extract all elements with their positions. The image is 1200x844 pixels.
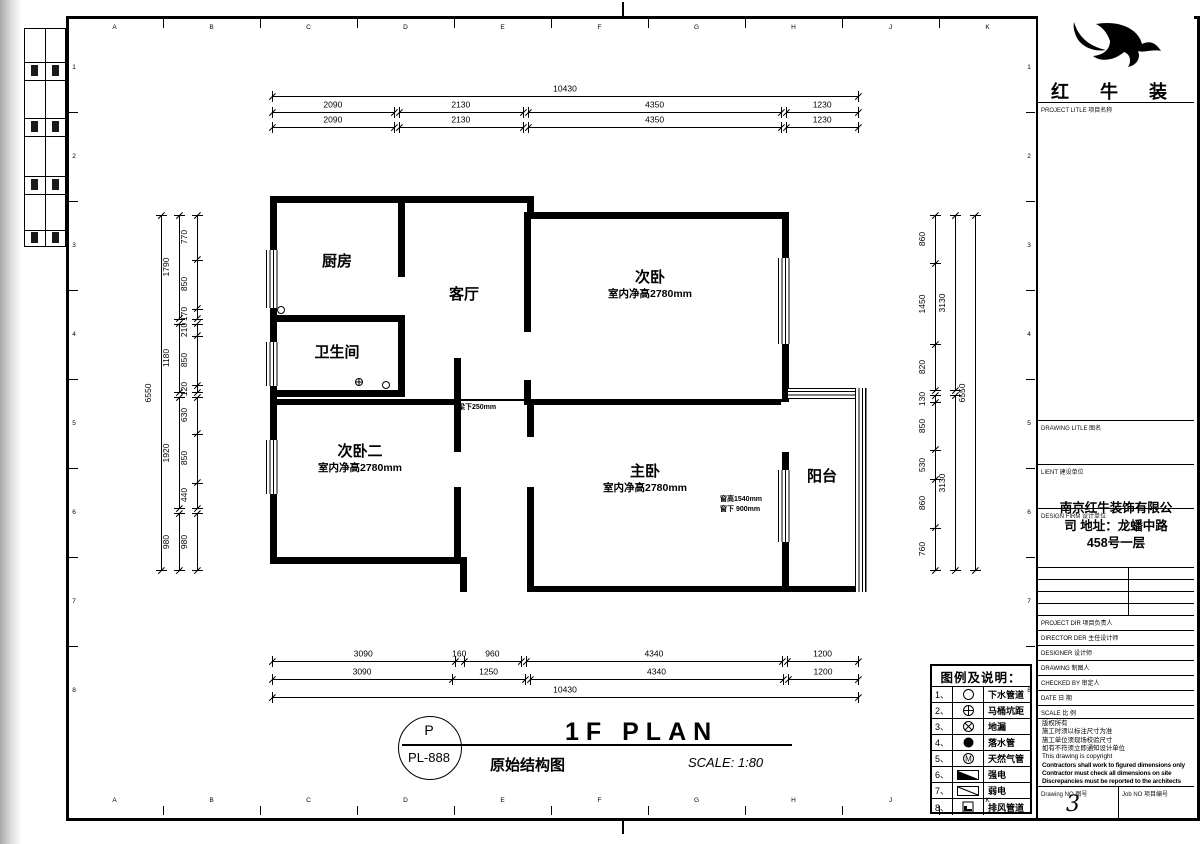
copyright-notes: 版权所有 施工时须以标注尺寸为准 施工单位须现场校验尺寸 如有不符须立即通知设计… [1042,720,1190,787]
dimension-value: 960 [485,650,499,659]
room-label-master: 主卧 [630,460,660,481]
dimension-chain: 10430 [272,83,858,99]
dimension-value: 770 [180,230,189,244]
circle-filled-icon [953,735,984,750]
dimension-value: 860 [918,232,927,246]
circle-icon [953,687,984,702]
legend-item-label: 地漏 [984,720,1030,733]
dimension-value: 3130 [938,293,947,312]
wall [277,315,404,322]
dimension-chain: 8601450820130850530860760 [920,215,936,570]
room-note-bedroom3: 室内净高2780mm [318,460,402,475]
wall [398,315,405,397]
dimension-value: 1180 [162,349,171,367]
dimension-value: 850 [180,353,189,367]
grid-letter-top: C [306,25,311,32]
plan-scale: SCALE: 1:80 [688,755,763,770]
dimension-value: 3130 [938,473,947,492]
dimension-chain: 6550 [960,215,976,570]
dimension-value: 10430 [553,686,577,695]
grid-letter-top: J [889,25,892,32]
dimension-chain: 309016096043401200 [272,648,858,664]
dimension-value: 2090 [323,116,342,125]
room-label-balcony: 阳台 [807,465,837,486]
window-symbol [266,440,278,494]
dimension-value: 4340 [644,650,663,659]
legend-item-number: 3、 [932,719,953,734]
room-note-bedroom2: 室内净高2780mm [608,286,692,301]
balcony-railing-top [788,388,858,399]
circle-plus-icon [953,703,984,718]
grid-number-right: 8 [1027,688,1031,695]
grid-number-left: 5 [72,421,76,428]
drawing-title-label: DRAWING LITLE 图名 [1041,423,1101,432]
grid-number-left: 7 [72,599,76,606]
stamp-letter: P [398,722,460,738]
legend-row: 8、排风管道 [932,799,1030,815]
dimension-value: 2130 [451,101,470,110]
dimension-chain: 2090213043501230 [272,114,858,130]
dimension-value: 1230 [813,101,832,110]
dimension-value: 4350 [645,101,664,110]
grid-letter-top: G [694,25,699,32]
dimension-value: 630 [180,408,189,422]
grid-number-right: 7 [1027,599,1031,606]
scan-edge-shade [0,0,22,844]
grid-number-right: 1 [1027,65,1031,72]
dimension-chain: 179011801920980 [164,215,180,570]
legend-row: 5、M天然气管 [932,751,1030,767]
legend-item-number: 8、 [932,799,953,815]
titleblock-row-label: PROJECT DIR 项目负责人 [1041,618,1113,627]
dimension-value: 2130 [451,116,470,125]
window-symbol [266,250,278,308]
titleblock-row-label: DESIGNER 设计师 [1041,648,1092,657]
room-label-kitchen: 厨房 [322,250,352,271]
room-label-bedroom3: 次卧二 [337,440,382,461]
dimension-value: 980 [162,535,171,549]
grid-letter-bottom: F [598,798,602,805]
grid-letter-top: D [403,25,408,32]
svg-text:M: M [965,755,972,764]
project-title-label: PROJECT LITLE 项目名称 [1041,105,1112,114]
grid-number-left: 3 [72,243,76,250]
job-no-label: Job NO 项目编号 [1122,789,1168,798]
dimension-value: 3090 [353,668,372,677]
title-block: 红 牛 装 饰 PROJECT LITLE 项目名称 DRAWING LITLE… [1038,16,1194,818]
legend-row: 4、落水管 [932,735,1030,751]
room-label-living: 客厅 [449,283,479,304]
wall [398,203,405,277]
grid-letter-top: K [985,25,989,32]
dimension-value: 1230 [813,116,832,125]
dimension-value: 1790 [162,257,171,276]
legend-item-label: 落水管 [984,736,1030,749]
room-label-bedroom2: 次卧 [635,266,665,287]
drain-pipe-icon [276,302,286,320]
titleblock-row-label: DATE 日 期 [1041,693,1072,702]
titleblock-row-label: CHECKED BY 审定人 [1041,678,1100,687]
wall [270,196,533,203]
grid-letter-bottom: B [209,798,213,805]
dimension-value: 6550 [144,383,153,402]
client-label: LIENT 建设单位 [1041,467,1084,476]
beam-line [404,399,526,401]
wall [527,405,534,437]
grid-number-right: 5 [1027,421,1031,428]
dimension-chain: 10430 [272,684,858,700]
rect-diag-icon [953,783,984,798]
grid-number-right: 6 [1027,510,1031,517]
fold-strip-table [24,28,66,247]
wall [527,586,857,592]
dimension-value: 130 [918,392,927,406]
drawing-no-value: 3 [1066,792,1080,817]
dimension-value: 2090 [323,101,342,110]
grid-letter-top: E [500,25,504,32]
dimension-value: 1920 [162,443,171,462]
dimension-value: 4340 [647,668,666,677]
titleblock-row-label: SCALE 比 例 [1041,708,1076,717]
dimension-value: 860 [918,496,927,510]
wall [527,487,534,592]
balcony-railing-right [855,388,868,592]
legend-item-label: 下水管道 [984,688,1030,701]
dimension-chain: 3090125043401200 [272,666,858,682]
legend-row: 7、弱电 [932,783,1030,799]
legend-item-number: 7、 [932,783,953,798]
legend-item-label: 排风管道 [984,801,1030,814]
dimension-value: 850 [180,277,189,291]
titleblock-row-label: DRAWING 制图人 [1041,663,1089,672]
dimension-value: 980 [180,535,189,549]
window-sill-note: 窗下 900mm [720,505,760,514]
dimension-value: 170 [180,307,189,321]
grid-letter-bottom: C [306,798,311,805]
grid-number-left: 2 [72,154,76,161]
grid-number-right: 4 [1027,332,1031,339]
dimension-value: 1200 [813,650,832,659]
circle-m-icon: M [953,751,984,766]
dimension-value: 210 [180,323,189,337]
wall [454,358,461,452]
balcony-door-opening [781,402,790,452]
grid-letter-top: H [791,25,796,32]
legend-row: 1、下水管道 [932,687,1030,703]
window-symbol [266,342,278,386]
legend-item-number: 5、 [932,751,953,766]
legend-item-number: 1、 [932,687,953,702]
fold-mark-top [622,2,624,16]
drawing-no-label: Drawing NO 图号 [1041,789,1087,798]
grid-number-right: 3 [1027,243,1031,250]
legend-row: 3、地漏 [932,719,1030,735]
grid-letter-bottom: H [791,798,796,805]
dimension-value: 120 [180,381,189,395]
legend-item-number: 2、 [932,703,953,718]
drain-pipe-icon [381,377,391,395]
dimension-chain: 31303130 [940,215,956,570]
grid-number-right: 2 [1027,154,1031,161]
dimension-value: 1450 [918,294,927,313]
room-note-master: 室内净高2780mm [603,480,687,495]
plan-title: 1F PLAN [565,718,718,747]
wall [454,487,461,557]
dimension-value: 1200 [814,668,833,677]
grid-letter-bottom: J [889,798,892,805]
grid-number-left: 1 [72,65,76,72]
wall [527,212,788,219]
dimension-value: 760 [918,542,927,556]
wall [524,212,531,332]
design-firm-text: 南京红牛装饰有限公司 地址：龙蟠中路 458号一层 [1056,500,1176,553]
dimension-value: 160 [452,650,466,659]
legend-row: 6、强电 [932,767,1030,783]
stamp-code: PL-888 [398,750,460,765]
drawing-sheet: 厨房 客厅 卫生间 次卧 室内净高2780mm 次卧二 室内净高2780mm 主… [0,0,1200,844]
circle-x-icon [953,719,984,734]
legend-title: 图例及说明： [932,666,1030,687]
brand-name: 红 牛 装 饰 [1038,78,1194,104]
dimension-chain: 2090213043501230 [272,99,858,115]
legend-item-number: 6、 [932,767,953,782]
wall [460,557,467,592]
legend-item-number: 4、 [932,735,953,750]
grid-letter-top: F [598,25,602,32]
window-symbol [778,258,790,344]
grid-letter-top: A [112,25,116,32]
grid-letter-bottom: K [985,798,989,805]
legend-row: 2、马桶坑距 [932,703,1030,719]
fold-mark-bottom [622,818,624,834]
grid-letter-bottom: D [403,798,408,805]
toilet-distance-icon [354,374,364,392]
dimension-value: 4350 [645,116,664,125]
dimension-chain: 770850170210850120630850440980 [182,215,198,570]
dimension-value: 440 [180,488,189,502]
dimension-value: 10430 [553,85,577,94]
wall [530,399,788,405]
firm-address: 地址：龙蟠中路 458号一层 [1080,519,1168,551]
dimension-value: 1250 [479,668,498,677]
grid-number-left: 8 [72,688,76,695]
dimension-value: 3090 [354,650,373,659]
room-label-bathroom: 卫生间 [314,341,359,362]
window-height-note: 窗高1540mm [720,495,762,504]
legend-item-label: 马桶坑距 [984,704,1030,717]
grid-letter-bottom: E [500,798,504,805]
grid-letter-top: B [209,25,213,32]
plan-subtitle: 原始结构图 [490,754,565,775]
dimension-value: 530 [918,458,927,472]
rect-filled-diag-icon [953,767,984,782]
dimension-value: 6550 [958,383,967,402]
dimension-value: 850 [180,451,189,465]
legend-item-label: 强电 [984,768,1030,781]
grid-number-left: 6 [72,510,76,517]
dimension-chain: 6550 [146,215,162,570]
wall [270,557,466,564]
legend-item-label: 弱电 [984,784,1030,797]
brand-logo-icon [1068,20,1164,74]
grid-number-left: 4 [72,332,76,339]
window-symbol [778,470,790,542]
legend-box: 图例及说明： 1、下水管道2、马桶坑距3、地漏4、落水管5、M天然气管6、强电7… [930,664,1032,814]
legend-item-label: 天然气管 [984,752,1030,765]
dimension-value: 850 [918,419,927,433]
dimension-value: 820 [918,360,927,374]
beam-note: 梁下250mm [458,403,496,412]
square-corner-icon [953,799,984,815]
grid-letter-bottom: G [694,798,699,805]
grid-letter-bottom: A [112,798,116,805]
titleblock-row-label: DIRECTOR DER 主任设计师 [1041,633,1118,642]
